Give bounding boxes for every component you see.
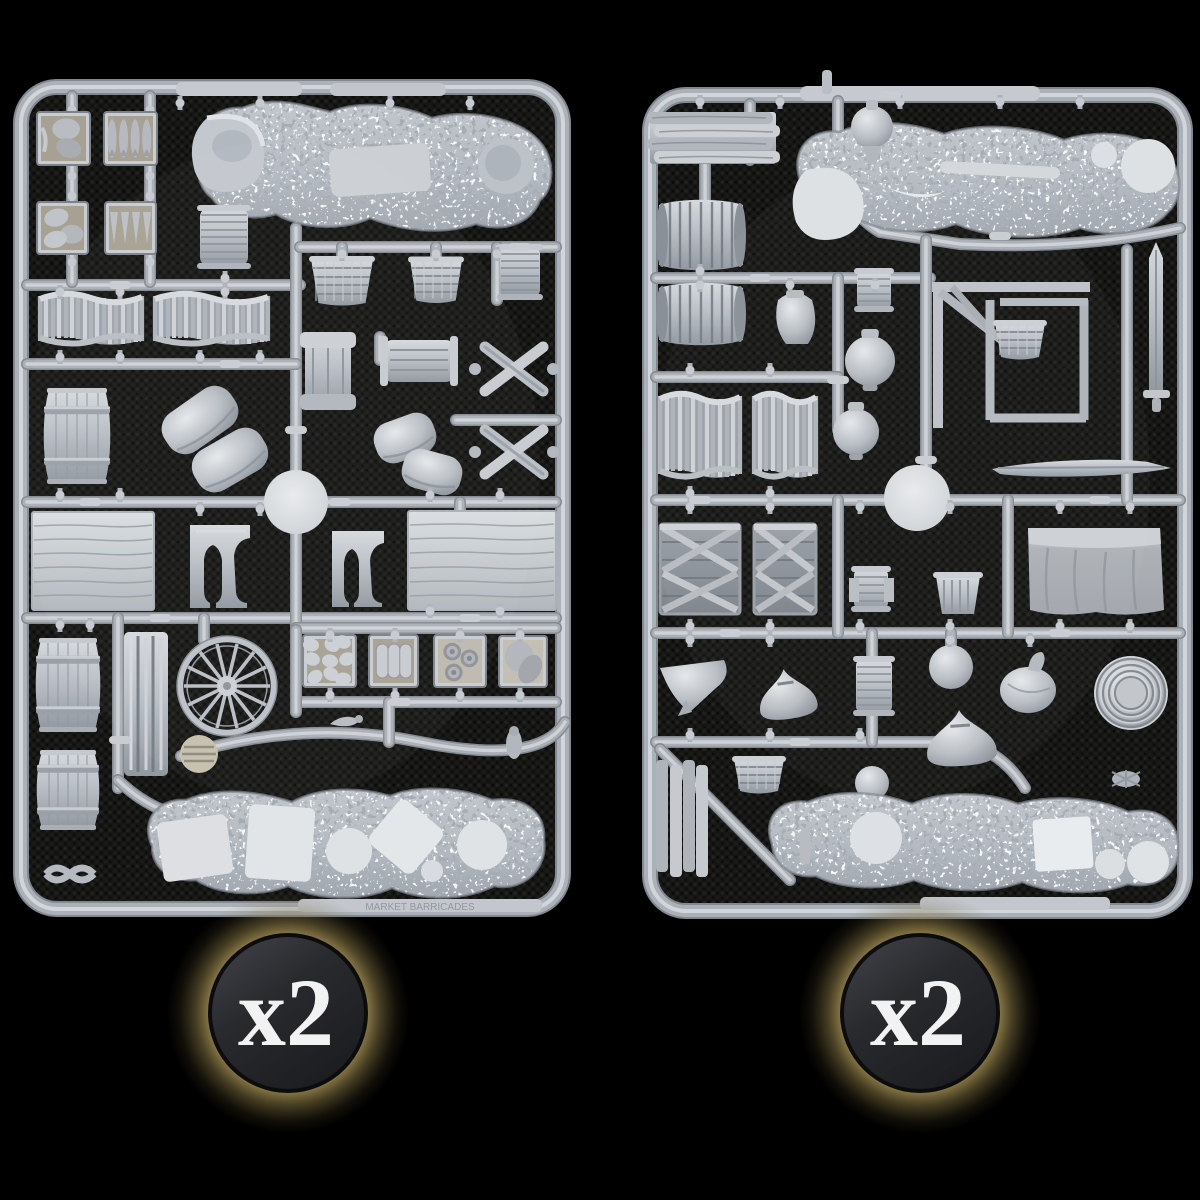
svg-text:x2: x2 [238, 959, 334, 1066]
svg-text:x2: x2 [870, 959, 966, 1066]
svg-text:MARKET BARRICADES: MARKET BARRICADES [365, 902, 475, 913]
